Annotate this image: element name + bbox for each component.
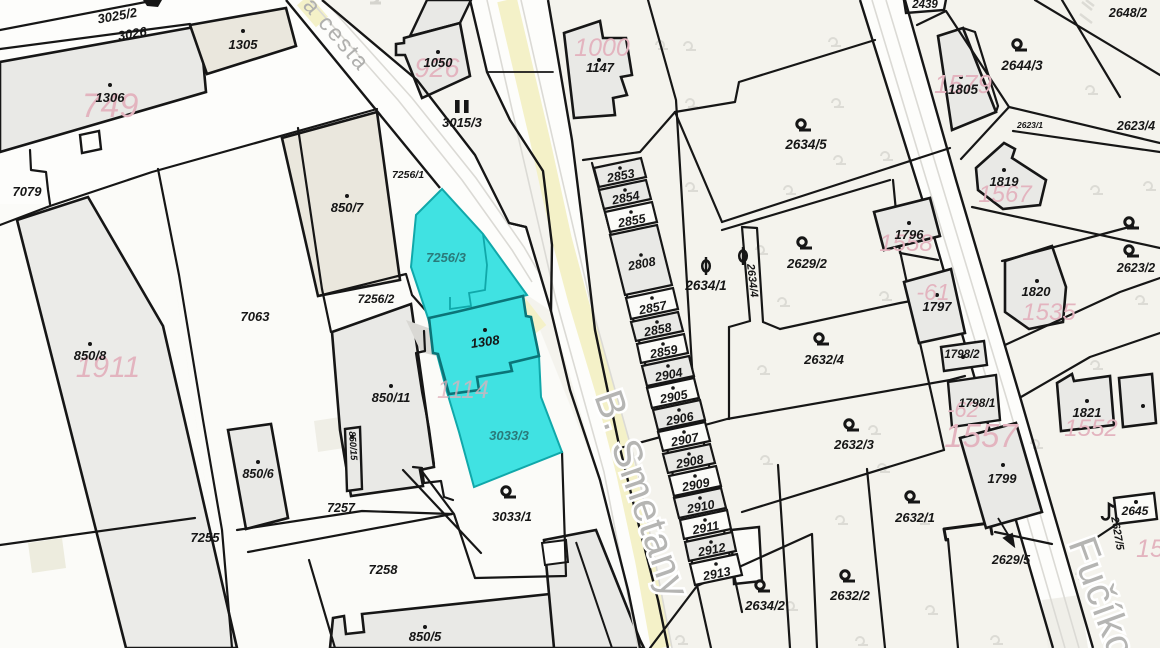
svg-text:2634/2: 2634/2 <box>744 598 786 613</box>
svg-text:1797: 1797 <box>923 299 953 314</box>
svg-text:2644/3: 2644/3 <box>1000 58 1043 73</box>
svg-text:1557: 1557 <box>944 417 1019 454</box>
svg-text:3015/3: 3015/3 <box>442 115 483 130</box>
svg-text:7255: 7255 <box>191 530 221 545</box>
svg-text:1798/1: 1798/1 <box>959 396 996 410</box>
svg-text:7256/3: 7256/3 <box>426 250 467 265</box>
svg-text:2632/1: 2632/1 <box>894 510 935 525</box>
svg-text:7256/1: 7256/1 <box>392 169 424 181</box>
svg-text:2623/1: 2623/1 <box>1016 120 1043 130</box>
svg-text:1820: 1820 <box>1022 284 1052 299</box>
svg-text:2634/1: 2634/1 <box>684 278 726 293</box>
svg-text:2648/2: 2648/2 <box>1108 6 1147 20</box>
svg-text:15: 15 <box>1136 535 1160 563</box>
svg-text:2629/2: 2629/2 <box>786 256 828 271</box>
svg-text:7079: 7079 <box>13 184 43 199</box>
svg-text:2632/2: 2632/2 <box>829 588 871 603</box>
svg-text:7257: 7257 <box>327 501 356 515</box>
svg-text:2645: 2645 <box>1121 504 1149 518</box>
svg-text:2629/5: 2629/5 <box>991 553 1031 567</box>
svg-text:2632/4: 2632/4 <box>803 352 845 367</box>
svg-text:1796: 1796 <box>895 227 925 242</box>
svg-text:2439: 2439 <box>911 0 938 11</box>
svg-text:1114: 1114 <box>437 376 489 404</box>
svg-text:1821: 1821 <box>1073 405 1102 420</box>
svg-text:850/5: 850/5 <box>409 629 442 644</box>
svg-text:1306: 1306 <box>96 90 126 105</box>
svg-text:1819: 1819 <box>990 174 1020 189</box>
svg-text:7258: 7258 <box>369 562 399 577</box>
svg-text:850/15: 850/15 <box>346 431 359 461</box>
svg-text:1799: 1799 <box>988 471 1018 486</box>
svg-text:1798/2: 1798/2 <box>944 349 980 361</box>
svg-text:3033/3: 3033/3 <box>489 428 530 443</box>
svg-text:1147: 1147 <box>586 60 615 75</box>
svg-text:2634/5: 2634/5 <box>784 137 827 152</box>
svg-text:2623/2: 2623/2 <box>1116 261 1155 275</box>
svg-text:7063: 7063 <box>241 309 271 324</box>
svg-text:1305: 1305 <box>229 37 259 52</box>
svg-text:3033/1: 3033/1 <box>492 509 532 524</box>
svg-text:1050: 1050 <box>424 55 454 70</box>
svg-text:850/7: 850/7 <box>331 200 364 215</box>
svg-text:2623/4: 2623/4 <box>1116 119 1155 133</box>
svg-text:850/8: 850/8 <box>74 348 107 363</box>
svg-text:7256/2: 7256/2 <box>358 292 395 306</box>
svg-text:1805: 1805 <box>948 82 979 97</box>
svg-text:850/6: 850/6 <box>242 467 274 481</box>
svg-text:1535: 1535 <box>1022 299 1076 326</box>
svg-text:2632/3: 2632/3 <box>833 437 875 452</box>
svg-text:1000: 1000 <box>574 34 630 62</box>
svg-text:850/11: 850/11 <box>372 390 411 405</box>
